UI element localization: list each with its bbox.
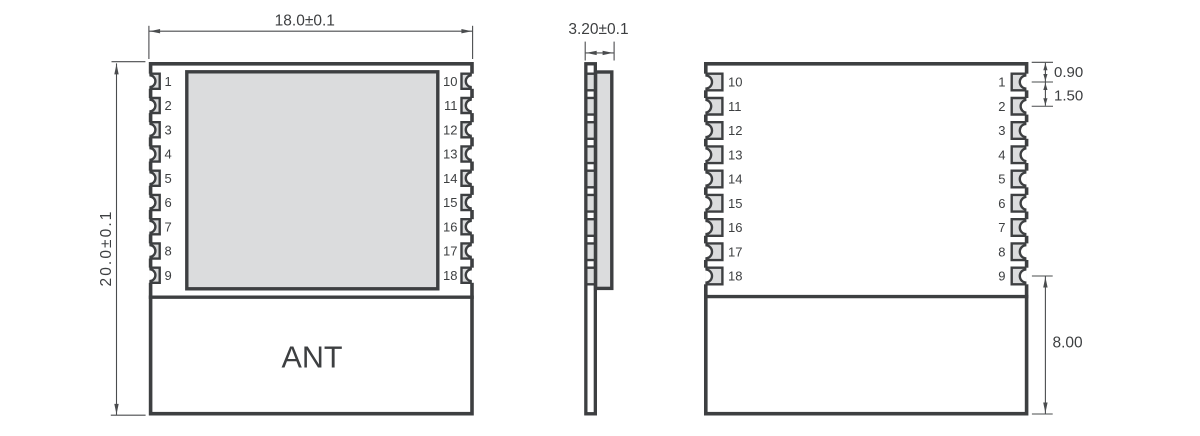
svg-text:10: 10	[443, 74, 457, 89]
svg-text:16: 16	[443, 219, 457, 234]
svg-text:ANT: ANT	[282, 340, 343, 374]
svg-text:4: 4	[165, 147, 172, 162]
svg-text:8: 8	[165, 244, 172, 259]
svg-text:3: 3	[165, 122, 172, 137]
svg-text:15: 15	[728, 196, 742, 211]
svg-text:17: 17	[443, 244, 457, 259]
svg-text:17: 17	[728, 244, 742, 259]
svg-text:6: 6	[165, 195, 172, 210]
svg-text:13: 13	[728, 147, 742, 162]
svg-text:4: 4	[998, 147, 1005, 162]
svg-text:14: 14	[443, 171, 457, 186]
svg-text:5: 5	[165, 171, 172, 186]
svg-text:12: 12	[728, 123, 742, 138]
svg-text:10: 10	[728, 75, 742, 90]
svg-text:2: 2	[998, 99, 1005, 114]
svg-text:8: 8	[998, 244, 1005, 259]
svg-text:3.20±0.1: 3.20±0.1	[568, 21, 628, 38]
svg-text:9: 9	[998, 269, 1005, 284]
svg-text:1: 1	[998, 75, 1005, 90]
svg-text:15: 15	[443, 195, 457, 210]
svg-text:13: 13	[443, 147, 457, 162]
svg-text:8.00: 8.00	[1053, 335, 1084, 352]
svg-text:1.50: 1.50	[1054, 87, 1083, 104]
svg-text:6: 6	[998, 196, 1005, 211]
svg-text:18: 18	[443, 268, 457, 283]
svg-text:11: 11	[728, 99, 742, 114]
svg-text:9: 9	[165, 268, 172, 283]
svg-text:20.0±0.1: 20.0±0.1	[98, 209, 115, 286]
svg-text:7: 7	[998, 220, 1005, 235]
svg-text:3: 3	[998, 123, 1005, 138]
svg-text:1: 1	[165, 74, 172, 89]
svg-text:5: 5	[998, 172, 1005, 187]
svg-text:18: 18	[728, 269, 742, 284]
svg-text:2: 2	[165, 98, 172, 113]
svg-text:18.0±0.1: 18.0±0.1	[275, 13, 335, 30]
svg-text:16: 16	[728, 220, 742, 235]
svg-text:14: 14	[728, 172, 742, 187]
svg-text:12: 12	[443, 122, 457, 137]
svg-text:7: 7	[165, 219, 172, 234]
svg-text:11: 11	[444, 98, 458, 113]
svg-text:0.90: 0.90	[1054, 64, 1083, 81]
